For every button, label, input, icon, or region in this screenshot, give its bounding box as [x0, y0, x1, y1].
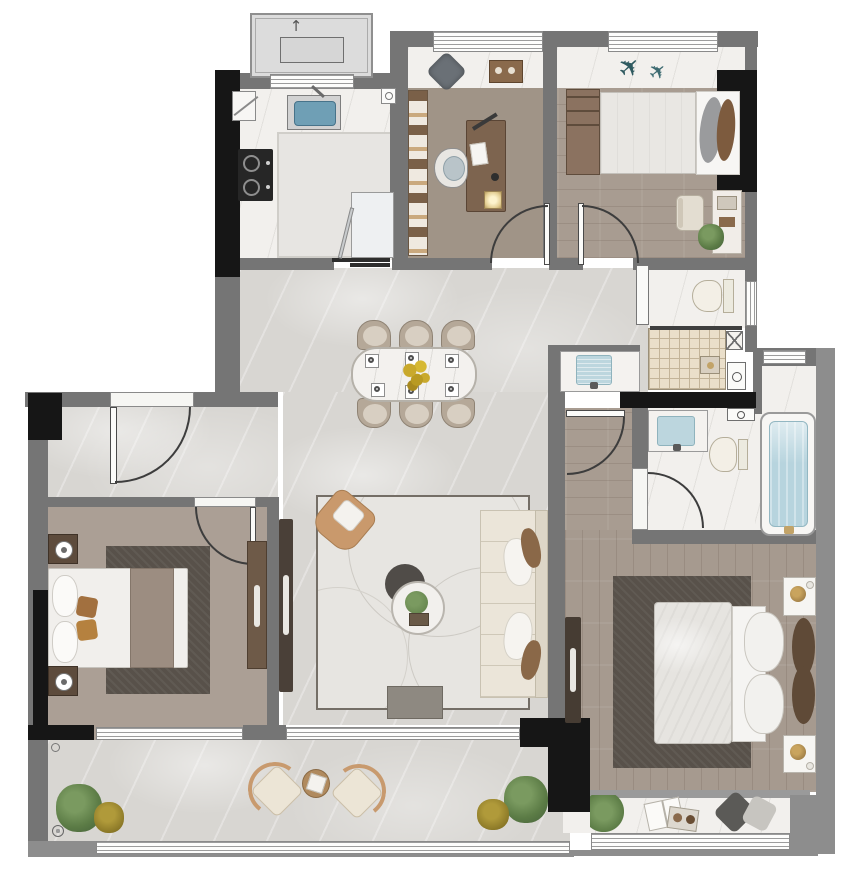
- guest-bath-window: [745, 281, 757, 326]
- master-toilet-bowl: [709, 437, 737, 472]
- bedroom1-lamp-1: [55, 541, 73, 559]
- dining-chair-top-1: [357, 320, 391, 350]
- bedroom2-headboard: [696, 91, 740, 175]
- kitchen-sink: [287, 95, 341, 130]
- living-tv-console: [279, 519, 293, 692]
- right-outer-wall: [816, 348, 835, 854]
- study-bay-window: [433, 31, 543, 52]
- bedroom1-nightstand-2: [48, 666, 78, 696]
- balcony-left-bottom-wall: [28, 841, 96, 854]
- bedroom2-mattress: [600, 92, 696, 174]
- toilet-bowl: [692, 280, 722, 312]
- kitchen-bottom-pier: [392, 258, 408, 270]
- equipment-platform: ↑: [250, 13, 373, 78]
- cabinet-diagonal: [234, 96, 259, 116]
- glass-partition: [650, 326, 742, 330]
- left-wall-column: [33, 590, 48, 740]
- washer-point-2: [727, 408, 755, 421]
- bedroom1-accent-pillow-2: [76, 619, 99, 642]
- corner-cabinet: [232, 91, 256, 121]
- guest-toilet: [692, 278, 734, 314]
- bedroom2-bay-window: [608, 31, 718, 52]
- tray-cup-2: [508, 67, 515, 74]
- dining-chair-bottom-1: [357, 398, 391, 428]
- place-setting-3: [445, 354, 459, 368]
- guest-bath-sliding-door[interactable]: [636, 265, 649, 325]
- dining-chair-top-2: [399, 320, 433, 350]
- tub-faucet-icon: [784, 526, 794, 534]
- duct-shaft: [726, 331, 743, 350]
- master-mattress: [654, 602, 732, 744]
- floor-plan: ↑: [0, 0, 861, 872]
- master-toilet: [708, 436, 750, 474]
- bath-divider-wall: [620, 392, 756, 408]
- tub-water: [769, 421, 808, 527]
- table-tray: [409, 613, 429, 626]
- master-faucet-icon: [673, 444, 681, 451]
- entry-threshold: [110, 392, 194, 407]
- bedroom1-nightstand-1: [48, 534, 78, 564]
- entry-left-column: [28, 393, 62, 440]
- nightstand1-plant: [790, 586, 806, 602]
- master-console-handle: [570, 648, 576, 692]
- burner-1: [243, 155, 260, 172]
- master-sink: [657, 416, 695, 446]
- master-balcony-bottom: [563, 850, 818, 856]
- floor-drain-1: [51, 743, 60, 752]
- left-mid-wall: [215, 277, 240, 393]
- washer-circle-2: [737, 411, 745, 419]
- bedroom2-dresser: [566, 89, 600, 175]
- stool-back: [678, 198, 683, 228]
- balcony-railing-window: [96, 841, 570, 854]
- dining-chair-top-3: [441, 320, 475, 350]
- balcony-tree-2: [504, 776, 548, 823]
- burner-2: [243, 179, 260, 196]
- dining-table: [351, 347, 477, 402]
- bedroom2-plant: [698, 224, 724, 250]
- knob-1: [266, 161, 270, 165]
- lounge-chair-1: [248, 762, 308, 822]
- tub-window: [763, 350, 806, 364]
- balcony-pier: [243, 725, 286, 740]
- master-pillow-white-1: [744, 612, 784, 672]
- master-balcony-plant: [590, 795, 624, 832]
- bedroom1-bottom-window: [96, 727, 243, 740]
- vent-arrow-icon: ↑: [288, 17, 304, 35]
- tea-tray: [489, 60, 523, 83]
- living-master-wall: [548, 392, 565, 740]
- place-setting-6: [445, 383, 459, 397]
- chair-cushion: [447, 326, 471, 346]
- kitchen-bottom-wall: [230, 258, 334, 270]
- ceiling-light: [381, 88, 396, 104]
- balcony-tray: [667, 806, 700, 832]
- master-balcony-right-pier: [790, 795, 818, 853]
- alcove-faucet-icon: [590, 382, 598, 389]
- balcony-shrub-2: [477, 799, 509, 830]
- lounge-chair-2: [326, 764, 386, 824]
- vanity-items: [719, 217, 735, 227]
- shower-drain-fixture: [700, 356, 720, 374]
- dining-chair-bottom-3: [441, 398, 475, 428]
- desk-cup: [491, 173, 499, 181]
- living-console-handle: [283, 575, 289, 635]
- master-balcony-window: [591, 833, 790, 850]
- bedroom1-balcony-column: [28, 725, 94, 740]
- alcove-left-wall: [548, 345, 560, 397]
- nightstand1-cup: [806, 581, 814, 589]
- living-bench: [387, 686, 443, 719]
- master-tv-console: [565, 617, 581, 723]
- alcove-sink: [576, 355, 612, 385]
- lounge-table-tray: [306, 773, 327, 794]
- sofa: [480, 510, 548, 698]
- place-setting-1: [365, 354, 379, 368]
- desk-lamp: [484, 191, 502, 209]
- master-balcony-column: [548, 747, 590, 812]
- flower-centerpiece: [399, 357, 435, 395]
- master-toilet-tank: [738, 439, 748, 470]
- bedroom1-threshold: [194, 497, 256, 507]
- balcony-shrub-1: [94, 802, 124, 833]
- washer-point-1: [727, 362, 746, 390]
- bedroom1-top-wall-left: [46, 497, 196, 507]
- balcony-bottom-line: [28, 854, 574, 857]
- bedroom1-blanket: [130, 568, 174, 668]
- bedroom1-accent-pillow-1: [75, 595, 98, 618]
- tray-cup-1: [495, 67, 502, 74]
- bedroom2-bottom-wall: [633, 258, 757, 270]
- master-nightstand-2: [783, 735, 816, 773]
- wardrobe-handle: [254, 585, 260, 627]
- alcove-counter: [560, 351, 640, 392]
- master-door-leaf[interactable]: [566, 410, 625, 417]
- chair-seat: [443, 156, 465, 181]
- study-desk: [466, 120, 506, 212]
- chair-cushion: [405, 326, 429, 346]
- chair-cushion: [363, 404, 387, 424]
- refrigerator: [351, 192, 394, 258]
- living-bottom-window: [286, 727, 520, 740]
- table-plant: [405, 591, 428, 614]
- bookshelf: [408, 90, 428, 256]
- entry-wall-right: [192, 392, 278, 407]
- bedroom1-pillow-1: [52, 575, 78, 617]
- cooktop: [238, 149, 273, 201]
- master-basin-counter: [648, 410, 708, 452]
- tray-item-1: [673, 813, 683, 823]
- bedroom1-right-wall: [267, 497, 279, 740]
- toilet-tank: [723, 279, 734, 313]
- master-pillow-brown-2: [792, 666, 815, 724]
- nightstand2-cup: [806, 762, 814, 770]
- master-pillow-white-2: [744, 674, 784, 734]
- nightstand2-plant: [790, 744, 806, 760]
- desk-papers: [470, 142, 489, 166]
- master-bath-threshold: [632, 468, 648, 530]
- knob-2: [266, 185, 270, 189]
- bedroom1-pillow-2: [52, 621, 78, 663]
- bedroom1-wardrobe: [247, 541, 267, 669]
- corridor-bath-wall: [632, 408, 648, 470]
- coffee-table: [391, 581, 445, 635]
- bedroom1-lamp-2: [55, 673, 73, 691]
- tray-item-2: [685, 814, 695, 824]
- dining-chair-bottom-2: [399, 398, 433, 428]
- vanity-mirror: [717, 196, 737, 210]
- place-setting-4: [371, 383, 385, 397]
- kitchen-sliding-track-2[interactable]: [350, 263, 390, 267]
- study-chair: [434, 148, 468, 188]
- floor-drain-2: [52, 825, 64, 837]
- chair-cushion: [405, 404, 429, 424]
- chair-cushion: [363, 326, 387, 346]
- washer-circle-1: [732, 372, 742, 382]
- bedroom2-stool: [676, 195, 704, 231]
- study-bottom-wall: [408, 258, 492, 270]
- ac-unit: [280, 37, 344, 63]
- light-circle: [385, 92, 393, 100]
- drain-gold-dot: [707, 362, 714, 369]
- master-nightstand-1: [783, 577, 816, 616]
- chair-cushion: [447, 404, 471, 424]
- sink-basin: [294, 101, 336, 126]
- bathtub: [760, 412, 816, 536]
